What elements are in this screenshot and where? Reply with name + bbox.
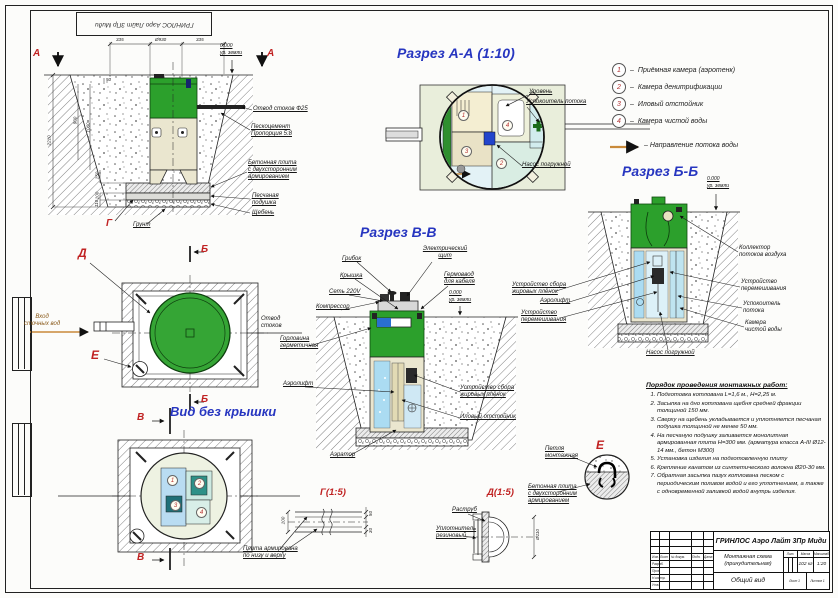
legend-num-3: 3 (612, 97, 626, 111)
aa-section-drawing (386, 85, 650, 190)
label-pump-bb: Насос погружной (646, 350, 695, 357)
tb-mass-header: Масса (798, 550, 813, 557)
label-flow-calmer-aa: Успокоитель потока (526, 99, 586, 106)
legend-dash-2: – (630, 84, 634, 91)
dim-335-left: 335 (116, 37, 124, 42)
legend-num-4: 4 (612, 114, 626, 128)
legend-dash-4: – (630, 118, 634, 125)
section-marker-v-top: В (137, 412, 144, 423)
installation-instructions: Порядок проведения монтажных работ: Подг… (646, 382, 826, 497)
label-mixer-right: Устройство перемешивания (741, 279, 786, 293)
label-inlet: Вход сточных вод (24, 314, 60, 328)
tb-sheets: Листов 1 (807, 573, 828, 588)
label-socket: Раструб (452, 507, 477, 514)
title-detail-g: Г(1:5) (320, 487, 346, 498)
label-slab-detail-e: Бетонная плита с двухсторонним армирован… (528, 484, 577, 505)
section-marker-a-right: А (267, 48, 274, 59)
dim-2210: 2210 (47, 135, 52, 145)
instructions-title: Порядок проведения монтажных работ: (646, 382, 826, 389)
detail-marker-d: Д (78, 246, 87, 260)
instructions-list: Подготовка котлована L=1,6 м., H=2,25 м.… (657, 392, 826, 496)
dim-900: 900 (72, 117, 77, 125)
title-section-bb: Разрез Б-Б (622, 163, 698, 179)
dim-50: 50 (106, 77, 111, 82)
chamber-num-3-plan: 3 (170, 500, 181, 511)
margin-stamp-2 (12, 423, 32, 497)
tb-scale-value: 1:20 (814, 558, 829, 571)
tb-product-name: ГРИНЛОС Аэро Лайт 3Пр Миди (714, 533, 828, 549)
bb-section-drawing (556, 194, 744, 350)
front-section-drawing (44, 42, 262, 224)
dim-335-right: 335 (196, 37, 204, 42)
tb-col-izm: Изм. (652, 555, 659, 559)
legend-text-3: Иловый отстойник (638, 101, 703, 108)
legend-text-2: Камера денитрификации (638, 84, 722, 91)
instruction-step: На песчаную подушку заливается монолитна… (657, 433, 826, 456)
chamber-num-1-plan: 1 (167, 475, 178, 486)
chamber-num-2-plan: 2 (194, 478, 205, 489)
label-power-220v: Сеть 220V (329, 289, 360, 296)
label-sand-cement: Пескоцемент Пропорция 5:8 (251, 124, 292, 138)
tb-row-developer: Разраб. (652, 562, 664, 566)
ground-level-bb: ур. земли (707, 183, 729, 189)
legend-dash-1: – (630, 67, 634, 74)
title-no-cover: Вид без крышки (170, 404, 276, 419)
tb-row-approver: Утв. (652, 583, 659, 587)
label-airlift-vv: Аэролифт (283, 381, 313, 388)
tb-mass-value: 102 кг (798, 558, 813, 571)
dim-g-100: 100 (280, 517, 285, 525)
instruction-step: Засыпка на дно котлована щебня средней ф… (657, 401, 826, 416)
tb-col-doc: № докум. (671, 555, 685, 559)
label-airlift-bb: Аэролифт (540, 298, 570, 305)
label-concrete-slab: Бетонная плита с двухсторонним армирован… (248, 160, 297, 181)
chamber-num-1-aa: 1 (458, 110, 469, 121)
label-level: Уровень (529, 89, 552, 96)
section-marker-b-top: Б (201, 244, 208, 255)
legend-num-2: 2 (612, 80, 626, 94)
title-detail-d: Д(1:5) (487, 487, 514, 498)
legend-item-2: 2 – Камера денитрификации (612, 80, 722, 94)
tb-scale-header: Масштаб (814, 550, 829, 557)
chamber-num-4-aa: 4 (502, 120, 513, 131)
label-sand-cushion: Песчаная подушка (252, 193, 279, 207)
zero-level-bb: 0.000 (707, 176, 720, 182)
label-gravel: Щебень (252, 210, 274, 217)
label-grease-bb: Устройство сбора жировых плёнок (512, 282, 566, 296)
label-clean-chamber: Камера чистой воды (745, 320, 782, 334)
legend-dash-3: – (630, 101, 634, 108)
label-aerator: Аэратор (330, 452, 355, 459)
ground-level-front: ур. земли (220, 50, 242, 56)
label-mixer-left: Устройство перемешивания (521, 310, 566, 324)
tb-col-list: Лист (660, 555, 668, 559)
legend-num-1: 1 (612, 63, 626, 77)
dim-g-30: 30 (368, 528, 373, 533)
chamber-num-3-aa: 3 (461, 146, 472, 157)
legend-item-3: 3 – Иловый отстойник (612, 97, 703, 111)
tb-lit-header: Лит. (784, 550, 797, 557)
zero-level-vv: 0.000 (449, 290, 462, 296)
legend-item-1: 1 – Приёмная камера (аэротенк) (612, 63, 735, 77)
label-pump-aa: Насос погружной (522, 162, 571, 169)
tb-row-checker: Пров. (652, 569, 660, 573)
detail-marker-e: Е (91, 348, 99, 362)
label-slab-reinforced: Плита армирована по низу и верху (243, 546, 298, 560)
tb-doc-name: Монтажная схема (принудительная) (714, 551, 782, 571)
dim-1060: 1060 (86, 122, 91, 132)
tb-view-name: Общий вид (714, 573, 782, 588)
tb-sheet: Лист 1 (784, 573, 805, 588)
tb-row-ncontrol: Н.контр. (652, 576, 666, 580)
instruction-step: Обратная засыпка пазух котлована песком … (657, 473, 826, 496)
label-neck: Горловина герметичная (280, 336, 318, 350)
instruction-step: Установка изделия на подготовленную плит… (657, 456, 826, 464)
dim-100: 100 (94, 192, 99, 200)
dim-150: 150 (94, 172, 99, 180)
label-air-collector: Коллектор потоков воздуха (739, 245, 786, 259)
zero-level-front: 0.000 (220, 43, 233, 49)
legend-flow-label: – Направление потока воды (644, 142, 738, 149)
title-section-vv: Разрез В-В (360, 224, 437, 240)
instruction-step: Сверху на щебень укладывается и уплотняе… (657, 417, 826, 432)
dim-g-50: 50 (368, 511, 373, 516)
dim-d-110: Ø110 (535, 529, 540, 540)
dim-930: Ø930 (155, 37, 166, 42)
label-sludge-vv: Иловый отстойник (460, 414, 516, 421)
label-mounting-loop: Петля монтажная (545, 446, 578, 460)
chamber-num-2-aa: 2 (496, 158, 507, 169)
section-marker-v-bottom: В (137, 552, 144, 563)
corner-stamp-text: ГРИНЛОС Аэро Лайт 3Пр Миди (95, 21, 194, 28)
label-soil: Грунт (133, 222, 150, 229)
section-marker-a-left: А (33, 48, 40, 59)
label-flow-calmer-bb: Успокоитель потока (743, 301, 781, 315)
label-outlet-plan: Отвод стоков (261, 316, 282, 330)
label-mushroom: Грибок (342, 256, 361, 263)
margin-stamp-1 (12, 297, 32, 371)
title-section-aa: Разрез А-А (1:10) (397, 45, 515, 61)
chamber-num-4-plan: 4 (196, 507, 207, 518)
dim-110: 110 (94, 200, 99, 207)
instruction-step: Крепление канатом из синтетического воло… (657, 465, 826, 473)
instruction-step: Подготовка котлована L=1,6 м., H=2,25 м. (657, 392, 826, 400)
legend-item-4: 4 – Камера чистой воды (612, 114, 707, 128)
label-grease-vv: Устройство сбора жировых плёнок (460, 385, 514, 399)
label-cover: Крышка (340, 273, 362, 280)
detail-marker-g: Г (106, 218, 112, 229)
ground-level-vv: ур. земли (449, 297, 471, 303)
label-cable-gland: Гермоввод для кабеля (444, 272, 475, 286)
legend-dash-flow: – (644, 142, 648, 149)
label-outlet-f25: Отвод стоков Ф25 (253, 106, 308, 113)
corner-stamp: ГРИНЛОС Аэро Лайт 3Пр Миди (76, 12, 212, 36)
tb-col-date: Дата (704, 555, 712, 559)
legend-flow-text: Направление потока воды (650, 142, 738, 149)
tb-col-sign: Подп. (692, 555, 700, 559)
title-detail-e: Е (596, 438, 604, 452)
title-block: Изм. Лист № докум. Подп. Дата Разраб. Пр… (650, 531, 830, 590)
legend-text-1: Приёмная камера (аэротенк) (638, 67, 735, 74)
label-rubber-seal: Уплотнитель резиновый (436, 526, 476, 540)
label-electric-panel: Электрический щит (420, 246, 470, 260)
label-compressor: Компрессор (316, 304, 350, 311)
drawing-sheet: ГРИНЛОС Аэро Лайт 3Пр Миди (0, 0, 838, 598)
legend-text-4: Камера чистой воды (638, 118, 707, 125)
